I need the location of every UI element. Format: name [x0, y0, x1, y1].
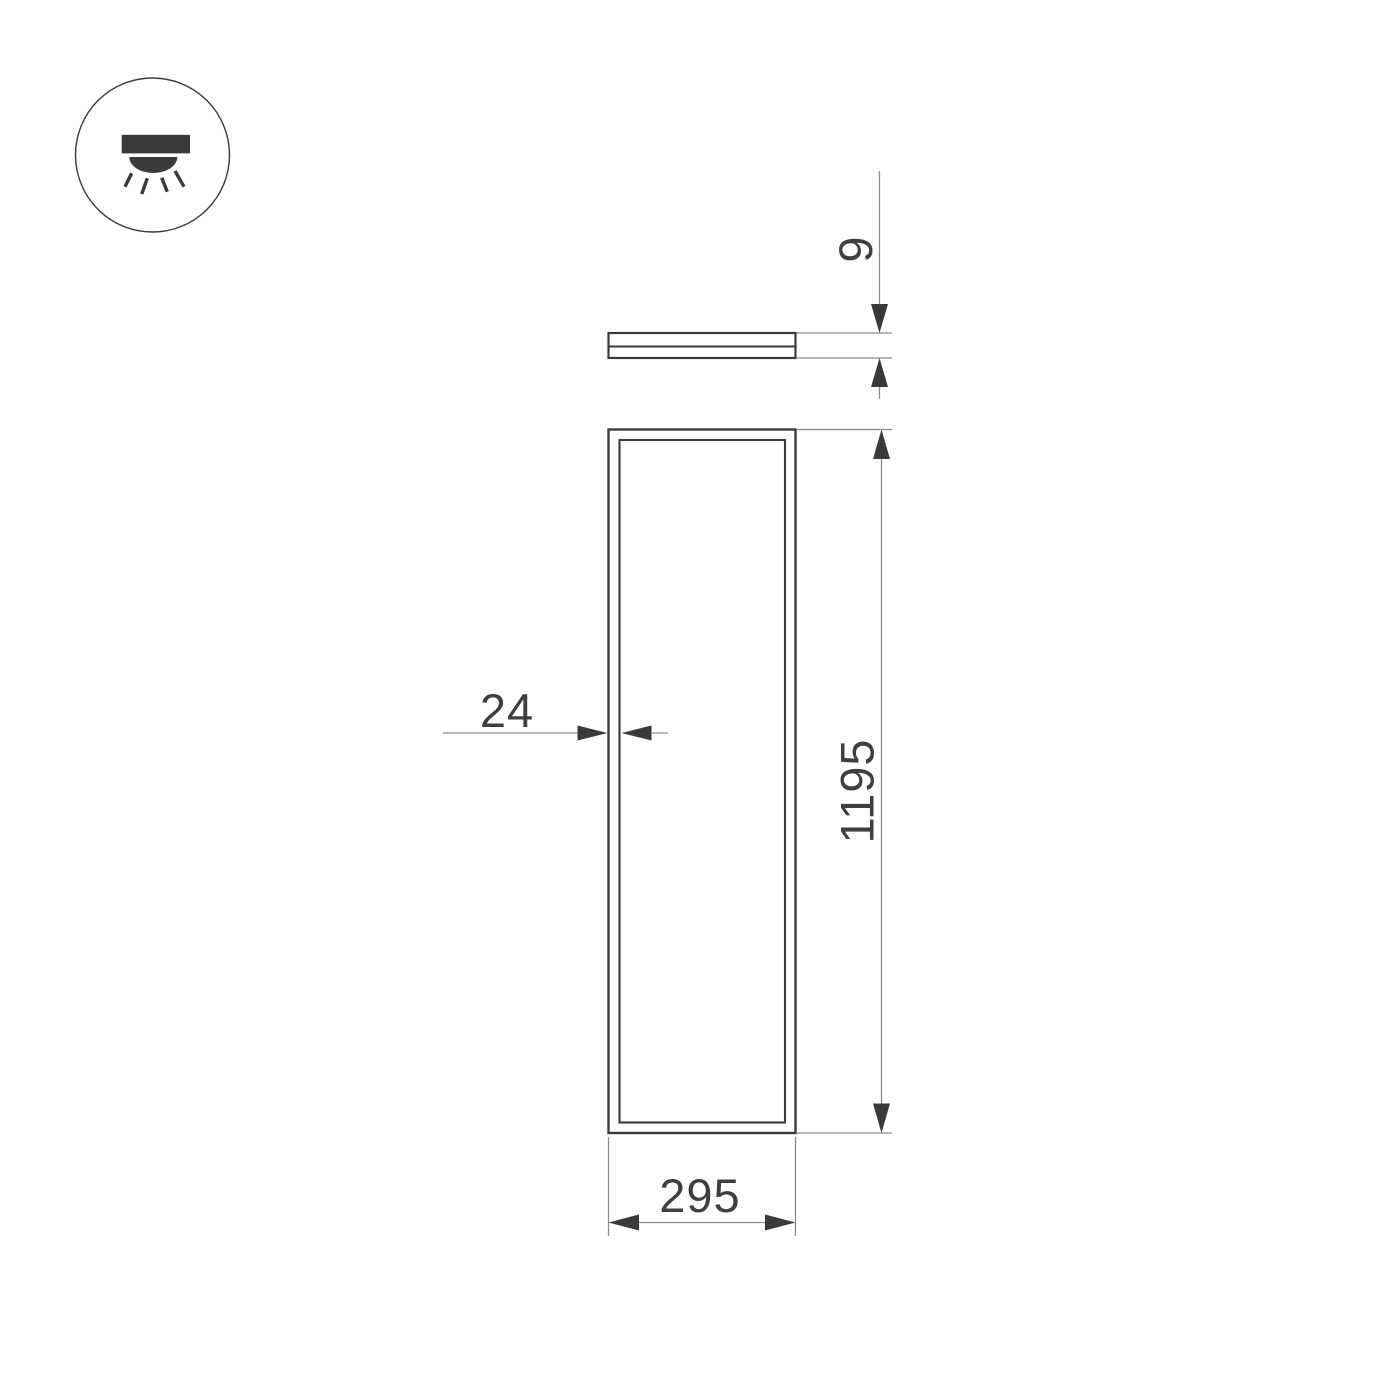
panel-dimension-drawing: 9 24 1195	[0, 0, 1400, 1400]
light-ray	[162, 178, 168, 192]
ceiling-downlight-icon	[76, 78, 230, 232]
light-ray	[125, 173, 132, 186]
arrowhead-right	[765, 1215, 796, 1231]
dimension-width: 295	[609, 1137, 796, 1236]
light-ray	[175, 171, 184, 187]
technical-drawing-page: 9 24 1195	[0, 0, 1400, 1400]
frame-border-value: 24	[480, 684, 534, 737]
arrowhead-left	[609, 1215, 640, 1231]
dimension-length: 1195	[797, 430, 892, 1134]
icon-light-rays	[125, 171, 184, 194]
icon-lamp-dome	[129, 157, 177, 173]
arrowhead-up	[871, 358, 888, 387]
width-value: 295	[659, 1169, 740, 1222]
dimension-frame-border: 24	[443, 684, 668, 741]
arrowhead-down	[871, 304, 888, 333]
front-view-inner-frame	[620, 440, 786, 1123]
arrowhead-left	[622, 726, 652, 741]
light-ray	[142, 178, 148, 194]
arrowhead-right	[578, 726, 608, 741]
dimension-thickness: 9	[797, 171, 892, 399]
panel-front-view	[609, 430, 796, 1134]
arrowhead-down	[873, 1104, 890, 1134]
icon-lamp-housing	[122, 135, 190, 154]
arrowhead-up	[873, 430, 890, 460]
icon-circle	[76, 78, 230, 232]
thickness-value: 9	[829, 235, 882, 262]
length-value: 1195	[831, 738, 884, 843]
front-view-outer-frame	[609, 430, 796, 1134]
panel-side-view	[609, 333, 796, 358]
